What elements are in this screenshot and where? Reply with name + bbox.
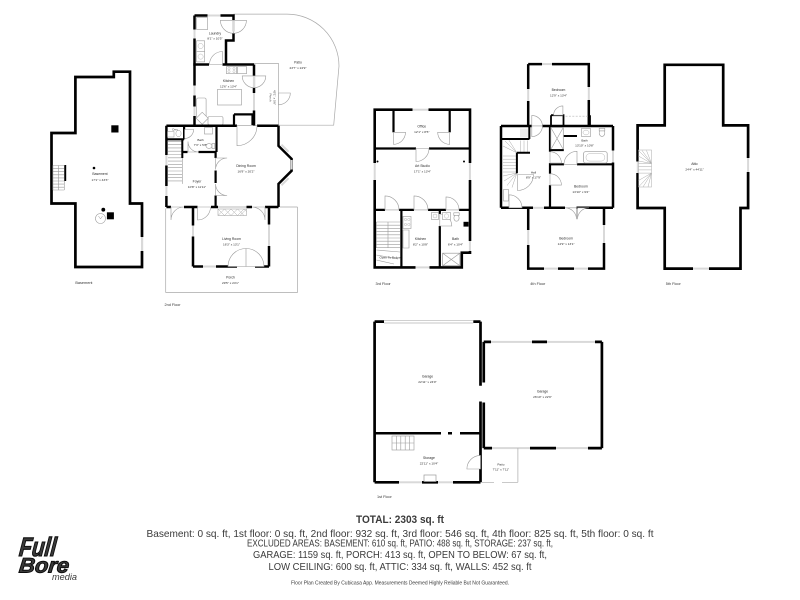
svg-text:Foyer: Foyer [193,180,203,184]
svg-text:Dining Room: Dining Room [236,164,256,168]
svg-text:Porch: Porch [269,93,273,101]
svg-text:TOTAL: 2303 sq. ft: TOTAL: 2303 sq. ft [356,514,444,526]
svg-text:3rd Floor: 3rd Floor [376,282,392,286]
svg-text:7'11" x 7'11": 7'11" x 7'11" [493,468,510,472]
svg-text:8'1" x 10'5": 8'1" x 10'5" [207,37,222,41]
svg-text:Patio: Patio [497,463,504,467]
svg-text:26'10" x 22'9": 26'10" x 22'9" [533,395,552,399]
svg-text:Basement: Basement [75,281,93,285]
svg-text:17'1" x 43'3": 17'1" x 43'3" [92,178,109,182]
svg-text:29'5" x 24'1": 29'5" x 24'1" [222,281,239,285]
svg-text:2nd Floor: 2nd Floor [165,303,182,307]
svg-text:Kitchen: Kitchen [223,79,234,83]
svg-text:Kitchen: Kitchen [415,237,426,241]
svg-text:Bath: Bath [581,139,588,143]
svg-text:43'1" x 5'6": 43'1" x 5'6" [273,90,277,105]
svg-text:Living Room: Living Room [222,237,241,241]
svg-text:Den: Den [172,128,178,132]
svg-text:22'11" x 24'0": 22'11" x 24'0" [418,380,436,384]
svg-text:Attic: Attic [691,162,698,166]
svg-text:5th Floor: 5th Floor [666,282,682,286]
svg-text:1st Floor: 1st Floor [377,495,393,499]
svg-text:14'9" x 13'1": 14'9" x 13'1" [558,242,575,246]
svg-text:Hall: Hall [531,171,537,175]
svg-text:Patio: Patio [294,61,302,65]
svg-text:Bedroom: Bedroom [574,185,588,189]
svg-text:Porch: Porch [226,276,235,280]
svg-text:media: media [52,572,77,583]
svg-text:Bath: Bath [197,138,204,142]
svg-text:Bedroom: Bedroom [552,88,566,92]
svg-text:4th Floor: 4th Floor [530,282,546,286]
svg-text:GARAGE: 1159 sq. ft, PORCH: 41: GARAGE: 1159 sq. ft, PORCH: 413 sq. ft, … [253,550,547,561]
svg-text:12'9" x 13'4": 12'9" x 13'4" [550,94,567,98]
svg-text:Storage: Storage [423,456,435,460]
svg-text:12'1" x 8'5": 12'1" x 8'5" [414,130,429,134]
svg-text:Art Studio: Art Studio [415,164,430,168]
svg-text:12'6" x 13'4": 12'6" x 13'4" [220,85,237,89]
svg-text:Laundry: Laundry [209,32,222,36]
svg-text:6'4" x 10'4": 6'4" x 10'4" [448,243,463,247]
svg-text:24'4" x 44'11": 24'4" x 44'11" [685,168,703,172]
svg-text:Basement: Basement [92,172,107,176]
svg-text:Garage: Garage [422,375,433,379]
svg-text:Bath: Bath [452,237,459,241]
svg-text:10'8" x 11'11": 10'8" x 11'11" [188,185,206,189]
svg-text:16'3" x 13'1": 16'3" x 13'1" [223,242,240,246]
svg-text:8'2" x 10'8": 8'2" x 10'8" [413,243,428,247]
svg-text:LOW CEILING: 600 sq. ft, ATTIC: LOW CEILING: 600 sq. ft, ATTIC: 334 sq. … [269,562,532,573]
svg-text:Garage: Garage [537,390,548,394]
svg-text:Floor Plan Created By Cubicasa: Floor Plan Created By Cubicasa App. Meas… [291,580,509,586]
svg-text:16'9" x 20'2": 16'9" x 20'2" [238,170,255,174]
svg-text:22'11" x 10'4": 22'11" x 10'4" [420,462,438,466]
svg-text:8'9" x 17'9": 8'9" x 17'9" [526,176,541,180]
svg-text:13'10" x 10'8": 13'10" x 10'8" [575,144,594,148]
svg-text:Open To Below: Open To Below [380,256,402,260]
svg-text:EXCLUDED AREAS: BASEMENT: 610: EXCLUDED AREAS: BASEMENT: 610 sq. ft, PA… [247,539,553,550]
svg-text:23'7" x 24'9": 23'7" x 24'9" [290,66,307,70]
svg-text:7'3" x 5'8": 7'3" x 5'8" [194,143,208,147]
svg-text:Office: Office [417,125,426,129]
svg-text:17'1" x 13'4": 17'1" x 13'4" [414,170,431,174]
svg-text:Bedroom: Bedroom [559,237,573,241]
svg-text:13'10" x 9'2": 13'10" x 9'2" [572,190,589,194]
